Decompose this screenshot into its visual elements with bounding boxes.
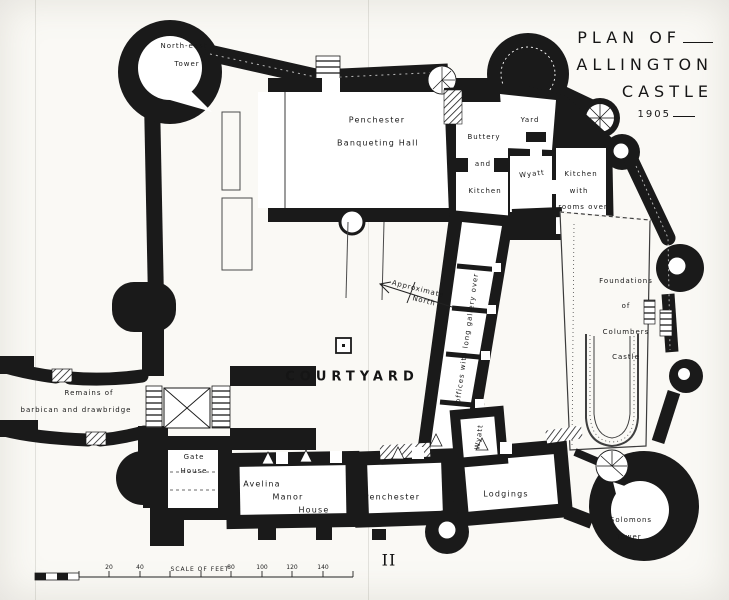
title-line-2: ALLINGTON [576, 51, 713, 78]
label-buttery: Buttery [467, 133, 500, 141]
label-avelina: Manor [272, 493, 303, 502]
label-columbers: Foundations [599, 277, 653, 285]
label-penchester-range: Penchester [364, 493, 420, 502]
label-yard: Yard [521, 116, 540, 124]
label-gate-house: Gate [184, 453, 205, 461]
label-columbers: of [622, 302, 631, 310]
scale-tick-label: 100 [256, 564, 267, 571]
label-gate-house: House [181, 467, 208, 475]
scanned-plan-page: North-east Tower Penchester Banqueting H… [0, 0, 729, 600]
hall-porch-bay [340, 210, 364, 234]
barbican-remains [0, 356, 144, 445]
label-lodgings: Lodgings [483, 490, 529, 499]
well-symbol [336, 338, 351, 353]
label-buttery: Kitchen [468, 187, 501, 195]
title-line-1: PLAN OF [577, 28, 681, 47]
label-courtyard: COURTYARD [285, 370, 418, 385]
solomons-tower-shape [566, 450, 699, 561]
label-columbers: Castle [612, 353, 640, 361]
label-wyatt-kitchen: rooms over [558, 203, 608, 211]
label-columbers: Columbers [603, 328, 650, 336]
label-avelina: Avelina [243, 480, 280, 489]
label-barbican: Remains of [65, 389, 114, 397]
label-solomons-tower: Solomons [610, 516, 652, 524]
label-avelina: House [298, 506, 329, 515]
scale-tick-label: 120 [286, 564, 297, 571]
label-buttery: and [475, 160, 491, 168]
label-north-east-tower: Tower [174, 60, 199, 68]
label-solomons-tower: Tower [616, 533, 641, 541]
label-wyatt-kitchen: with [570, 187, 589, 195]
straight-stair-icon [660, 310, 672, 336]
title-year: 1905 [638, 109, 671, 120]
plate-number: II [382, 551, 397, 570]
scale-tick-label: 80 [227, 564, 235, 571]
label-wyatt-kitchen: Kitchen [564, 170, 597, 178]
drawbridge-pit [146, 386, 230, 428]
label-north-east-tower: North-east [160, 42, 207, 50]
north-east-tower-shape [118, 20, 222, 124]
title-rule [673, 116, 695, 117]
title-block: PLAN OF ALLINGTON CASTLE 1905 [576, 24, 713, 125]
label-banqueting-hall: Penchester [349, 116, 405, 125]
scale-tick-label: 40 [136, 564, 144, 571]
straight-stair-icon [644, 300, 655, 324]
spiral-stair-icon [596, 450, 628, 482]
title-line-3: CASTLE [576, 78, 713, 105]
title-rule [683, 42, 713, 43]
label-banqueting-hall: Banqueting Hall [337, 139, 419, 148]
scale-tick-label: 140 [317, 564, 328, 571]
scale-caption: SCALE OF FEET [171, 566, 230, 573]
label-barbican: barbican and drawbridge [21, 406, 132, 414]
scale-tick-label: 20 [105, 564, 113, 571]
